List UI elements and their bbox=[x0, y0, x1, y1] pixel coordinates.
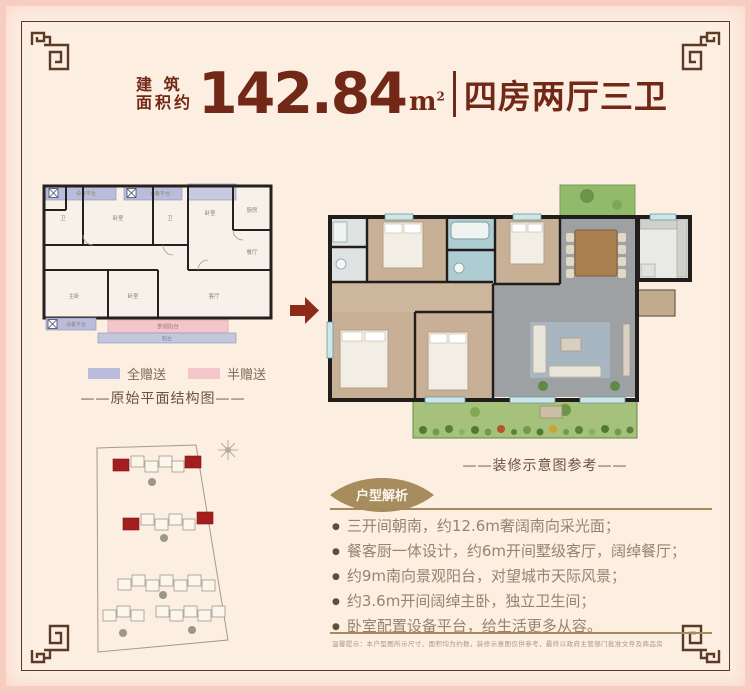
building-row bbox=[103, 606, 225, 637]
disclaimer: 温馨提示：本户型图所示尺寸、面积均为约数，装修示意图仅供参考，最终以政府主管部门… bbox=[332, 638, 662, 648]
svg-text:主卧: 主卧 bbox=[68, 292, 80, 300]
fret-corner-icon bbox=[28, 622, 72, 666]
arrow-right-icon bbox=[290, 297, 319, 324]
legend-swatch-full-gift bbox=[88, 368, 120, 379]
building-row bbox=[123, 512, 213, 542]
building-row bbox=[113, 456, 201, 486]
svg-text:卫: 卫 bbox=[60, 215, 66, 222]
svg-text:卧室: 卧室 bbox=[112, 214, 124, 222]
svg-text:卫: 卫 bbox=[167, 215, 173, 222]
area-prefix-bottom: 面积约 bbox=[136, 94, 193, 112]
svg-text:阳台: 阳台 bbox=[162, 336, 172, 343]
svg-text:设备平台: 设备平台 bbox=[76, 190, 96, 197]
analysis-badge: 户型解析 bbox=[330, 478, 434, 512]
area-prefix-top: 建 筑 bbox=[136, 76, 193, 94]
analysis-bullet: 约9m南向景观阳台，对望城市天际风景； bbox=[332, 565, 724, 590]
analysis-rule-top bbox=[330, 508, 712, 510]
original-floorplan: 设备平台 设备平台 设备平台 景观阳台 阳台 bbox=[38, 170, 288, 355]
svg-text:景观阳台: 景观阳台 bbox=[157, 323, 180, 331]
fret-corner-icon bbox=[28, 29, 72, 73]
compass-icon bbox=[218, 440, 238, 460]
analysis-bullet-list: 三开间朝南，约12.6m奢阔南向采光面； 餐客厨一体设计，约6m开间墅级客厅，阔… bbox=[332, 515, 724, 640]
area-value: 142.84 bbox=[198, 70, 406, 118]
svg-text:厨房: 厨房 bbox=[246, 206, 258, 214]
original-plan-caption: ——原始平面结构图—— bbox=[38, 388, 288, 408]
layout-title: 四房两厅三卫 bbox=[464, 70, 668, 118]
svg-text:卧室: 卧室 bbox=[127, 292, 139, 300]
decorated-floorplan bbox=[325, 172, 715, 444]
svg-text:设备平台: 设备平台 bbox=[66, 321, 86, 328]
gift-balcony-strips: 设备平台 景观阳台 阳台 bbox=[46, 318, 236, 343]
svg-text:户型解析: 户型解析 bbox=[356, 488, 408, 504]
title-divider bbox=[453, 71, 456, 117]
header-title: 建 筑 面积约 142.84 m2 四房两厅三卫 bbox=[136, 70, 668, 118]
site-plan bbox=[68, 428, 298, 668]
analysis-bullet: 卧室配置设备平台，给生活更多从容。 bbox=[332, 615, 724, 640]
building-row bbox=[118, 575, 215, 599]
analysis-bullet: 三开间朝南，约12.6m奢阔南向采光面； bbox=[332, 515, 724, 540]
fret-corner-icon bbox=[679, 29, 723, 73]
analysis-bullet: 约3.6m开间阔绰主卧，独立卫生间； bbox=[332, 590, 724, 615]
floorplan-poster: 建 筑 面积约 142.84 m2 四房两厅三卫 设备平台 设备平台 bbox=[0, 0, 751, 692]
area-unit: m2 bbox=[409, 87, 445, 117]
decorated-plan-caption: ——装修示意图参考—— bbox=[400, 455, 690, 475]
svg-text:卧室: 卧室 bbox=[204, 209, 216, 217]
landscape-balcony bbox=[413, 400, 637, 438]
analysis-bullet: 餐客厨一体设计，约6m开间墅级客厅，阔绰餐厅； bbox=[332, 540, 724, 565]
legend-swatch-half-gift bbox=[188, 368, 220, 379]
legend-label-full-gift: 全赠送 bbox=[127, 364, 166, 383]
area-prefix: 建 筑 面积约 bbox=[136, 76, 193, 112]
svg-text:客厅: 客厅 bbox=[208, 292, 220, 300]
analysis-rule-bottom bbox=[330, 632, 712, 634]
legend: 全赠送 半赠送 bbox=[88, 364, 266, 383]
legend-label-half-gift: 半赠送 bbox=[227, 364, 266, 383]
svg-text:餐厅: 餐厅 bbox=[246, 248, 258, 256]
